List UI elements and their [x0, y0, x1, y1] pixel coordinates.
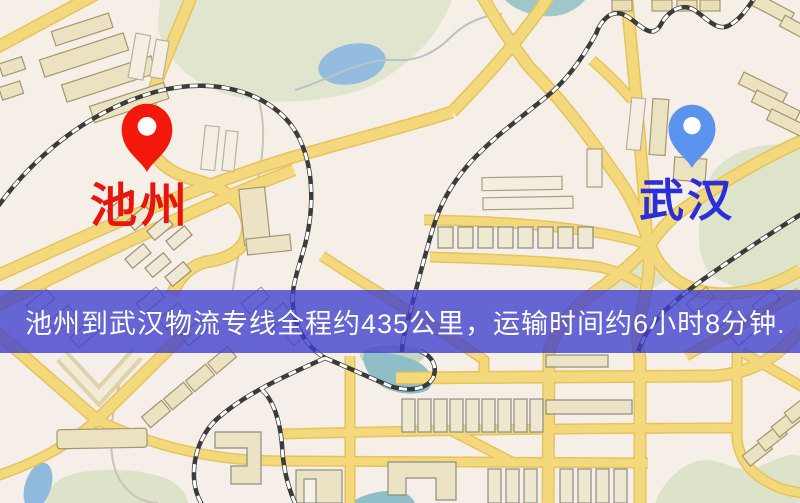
origin-pin-hole [138, 117, 157, 136]
destination-pin-hole [683, 117, 700, 134]
route-info-banner: 池州到武汉物流专线全程约435公里，运输时间约6小时8分钟. [0, 290, 800, 353]
route-info-text: 池州到武汉物流专线全程约435公里，运输时间约6小时8分钟. [25, 302, 786, 341]
origin-city-label: 池州 [90, 181, 190, 233]
map-base-layer: 池州 武汉 [0, 0, 800, 503]
map-canvas[interactable]: 池州 武汉 池州到武汉物流专线全程约435公里，运输时间约6小时8分钟. [0, 0, 800, 503]
destination-city-label: 武汉 [639, 176, 735, 226]
